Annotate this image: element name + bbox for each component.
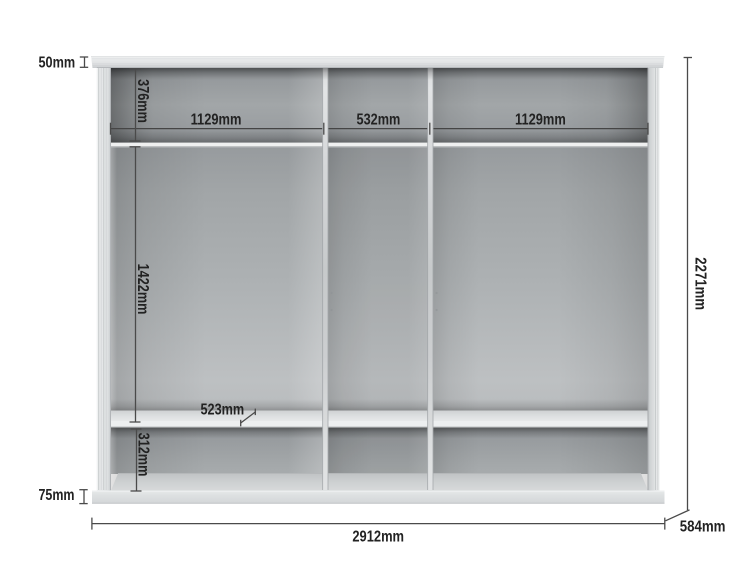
- svg-text:312mm: 312mm: [135, 433, 152, 477]
- svg-text:376mm: 376mm: [134, 79, 151, 123]
- svg-text:75mm: 75mm: [39, 487, 75, 504]
- svg-text:532mm: 532mm: [357, 112, 401, 129]
- svg-text:50mm: 50mm: [39, 55, 76, 72]
- svg-text:1129mm: 1129mm: [515, 112, 566, 129]
- svg-text:523mm: 523mm: [201, 402, 245, 419]
- svg-text:2271mm: 2271mm: [692, 257, 709, 310]
- svg-text:584mm: 584mm: [680, 519, 726, 536]
- svg-text:1129mm: 1129mm: [191, 112, 242, 129]
- svg-text:2912mm: 2912mm: [352, 529, 404, 546]
- svg-text:1422mm: 1422mm: [134, 264, 151, 315]
